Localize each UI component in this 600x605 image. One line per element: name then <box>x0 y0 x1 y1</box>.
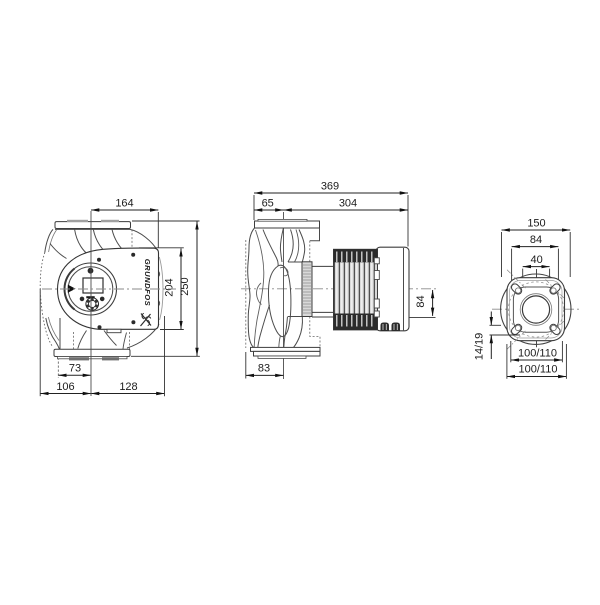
svg-text:73: 73 <box>69 363 81 375</box>
svg-text:250: 250 <box>179 277 191 295</box>
svg-text:GRUNDFOS: GRUNDFOS <box>143 259 152 306</box>
svg-text:304: 304 <box>339 198 357 210</box>
svg-text:84: 84 <box>415 295 427 307</box>
svg-text:100/110: 100/110 <box>518 347 557 359</box>
svg-text:100/110: 100/110 <box>519 363 558 375</box>
svg-text:40: 40 <box>530 254 542 266</box>
svg-text:150: 150 <box>527 218 545 230</box>
svg-text:369: 369 <box>321 181 339 193</box>
svg-text:164: 164 <box>115 198 133 210</box>
svg-text:128: 128 <box>119 381 137 393</box>
svg-text:106: 106 <box>56 381 74 393</box>
svg-text:14/19: 14/19 <box>474 333 486 361</box>
svg-text:84: 84 <box>530 234 542 246</box>
svg-text:83: 83 <box>258 363 270 375</box>
svg-text:65: 65 <box>262 198 274 210</box>
svg-text:204: 204 <box>164 278 176 296</box>
